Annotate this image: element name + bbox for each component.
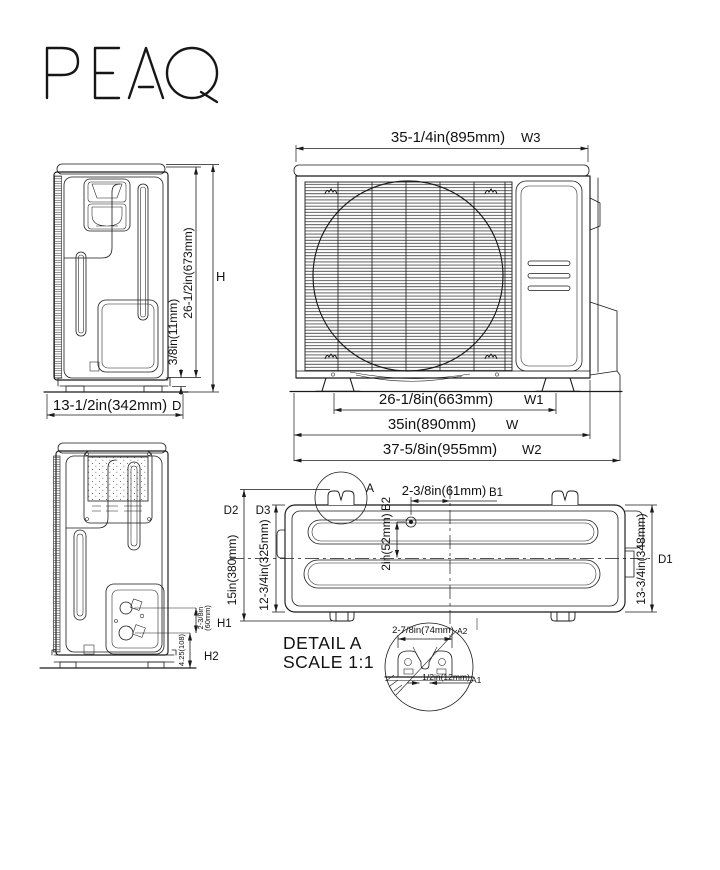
side-body-height-value: 26-1/2in(673mm): [181, 227, 195, 318]
side-coil-fins: [55, 176, 62, 378]
mount-tab-bottom-right: [551, 612, 575, 621]
side-base-height-value: 3/8in(11mm): [166, 299, 180, 365]
top-right-depth-label: D1: [658, 554, 673, 566]
side-depth-value: 13-1/2in(342mm): [53, 397, 167, 414]
mount-tab-bottom-left: [330, 612, 354, 621]
side-view-drawing: 13-1/2in(342mm) D 26-1/2in(673mm) 3/8in(…: [44, 164, 225, 419]
top-overall-depth-value: 15in(380mm): [225, 535, 239, 606]
top-screw-offset-value: 2-3/8in(61mm): [402, 483, 487, 498]
valve-large: [119, 626, 133, 640]
back-valve-spacing-value2: (60mm): [203, 605, 212, 631]
front-foot-right: [542, 378, 574, 391]
front-top-width-value: 35-1/4in(895mm): [391, 129, 505, 146]
top-inner-depth-label: D3: [256, 505, 271, 517]
front-body-width-label: W: [506, 417, 519, 432]
top-right-depth-value: 13-3/4in(348mm): [634, 513, 648, 604]
top-overall-depth-label: D2: [224, 505, 239, 517]
detail-a-callout-circle: [315, 472, 367, 524]
detail-a-marker: A: [366, 481, 374, 495]
logo-letter-a: [129, 48, 163, 98]
logo-letter-e: [95, 48, 119, 98]
front-overall-width-label: W2: [522, 442, 542, 457]
front-overall-width-value: 37-5/8in(955mm): [383, 441, 497, 458]
mount-tab-top-left: [328, 491, 354, 505]
detail-a-scale: SCALE 1:1: [283, 652, 374, 672]
detail-slot-width-value: 1/2in(12mm): [422, 672, 470, 682]
detail-slot-width-label: A1: [471, 675, 482, 685]
top-inner-depth-value: 12-3/4in(325mm): [257, 519, 271, 610]
detail-bracket-width-value: 2-7/8in(74mm): [392, 625, 454, 636]
top-view-drawing: A 2-3/8in(61mm) B1 B2 2in(52mm) D2 15in(…: [224, 472, 673, 640]
valve-cover: [106, 584, 164, 654]
back-valve-height-label: H2: [204, 651, 219, 663]
front-top-width-label: W3: [521, 130, 541, 145]
front-feet-span-label: W1: [524, 392, 544, 407]
detail-a-drawing: DETAIL A SCALE 1:1 2-7/8in(74mm) A2 1/2i…: [283, 618, 482, 711]
detail-bracket-width-label: A2: [457, 626, 468, 636]
logo-letter-p: [47, 48, 78, 98]
back-valve-height-value: 4.25(108): [177, 633, 186, 666]
valve-small: [120, 602, 132, 614]
mount-tab-top-right: [552, 491, 578, 505]
top-screw-inset-value: 2in(52mm): [379, 513, 393, 570]
technical-drawing-page: PEAQ: [0, 0, 720, 870]
back-coil-fins: [54, 456, 61, 652]
front-body-width-value: 35in(890mm): [388, 416, 476, 433]
dimension-drawing: 13-1/2in(342mm) D 26-1/2in(673mm) 3/8in(…: [0, 0, 720, 870]
front-grille: [305, 182, 512, 371]
brand-logo: [47, 48, 217, 102]
front-feet-span-value: 26-1/8in(663mm): [379, 391, 493, 408]
back-view-drawing: 2-3/8in (60mm) H1 4.25(108) H2: [40, 443, 232, 668]
side-total-height-label: H: [216, 269, 225, 284]
front-view-drawing: 35-1/4in(895mm) W3 26-1/8in(663mm) W1 35…: [290, 129, 622, 461]
front-foot-left: [322, 378, 354, 391]
rating-label: [88, 457, 148, 501]
top-screw-inset-label: B2: [381, 497, 393, 511]
back-valve-spacing-label: H1: [217, 618, 232, 630]
logo-letter-q-tail: [201, 92, 217, 102]
side-depth-label: D: [172, 398, 181, 413]
top-screw-offset-label: B1: [489, 487, 503, 499]
logo-letter-q: [167, 48, 217, 98]
detail-a-title: DETAIL A: [283, 633, 362, 653]
